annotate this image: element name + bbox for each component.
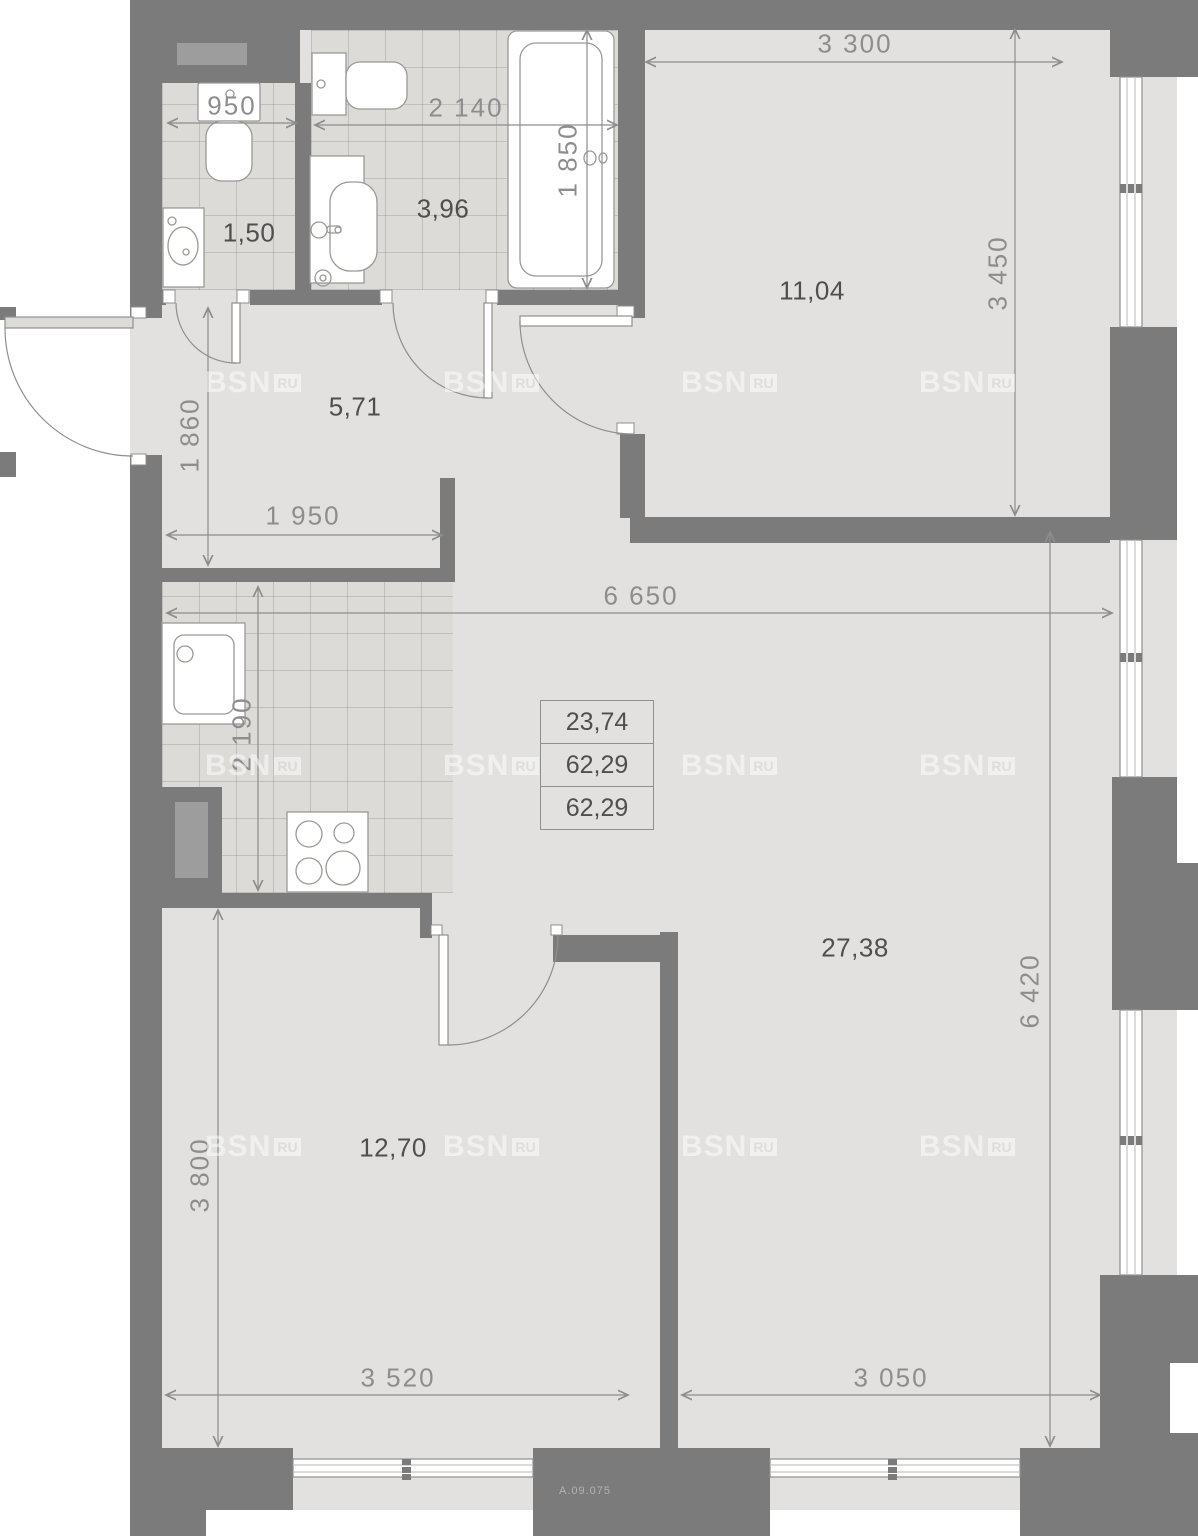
dim-bedroom-height: 3 450	[983, 235, 1014, 310]
summary-box: 23,74 62,29 62,29	[540, 700, 654, 830]
bathroom-sink	[310, 156, 377, 286]
dim-living-width: 6 650	[603, 581, 678, 612]
area-label-living: 27,38	[821, 933, 889, 964]
summary-room-area: 23,74	[541, 701, 653, 743]
watermark: BSN RU	[205, 368, 301, 398]
watermark: BSN RU	[681, 1132, 777, 1162]
dim-hall-height: 1 860	[175, 397, 206, 472]
window-living-upper	[1120, 540, 1142, 777]
watermark: BSN RU	[443, 751, 539, 781]
stove	[287, 812, 368, 892]
window-living-bottom	[770, 1459, 1020, 1480]
dim-living-bottom-width: 3 050	[853, 1363, 928, 1394]
plan-code: A.09.075	[559, 1485, 611, 1497]
window-room-bottom	[293, 1459, 533, 1480]
dim-bedroom-width: 3 300	[817, 29, 892, 60]
area-label-room: 12,70	[359, 1133, 427, 1164]
area-label-bathroom: 3,96	[417, 194, 470, 225]
summary-full-area: 62,29	[541, 786, 653, 829]
watermark: BSN RU	[919, 751, 1015, 781]
watermark: BSN RU	[919, 368, 1015, 398]
floorplan: 950 2 140 1 850 3 300 3 450 1 860 1 950 …	[0, 0, 1198, 1536]
watermark: BSN RU	[681, 751, 777, 781]
watermark: BSN RU	[443, 1132, 539, 1162]
watermark: BSN RU	[205, 1132, 301, 1162]
room-door	[439, 935, 558, 1045]
watermark: BSN RU	[205, 751, 301, 781]
summary-total-area: 62,29	[541, 743, 653, 786]
watermark-suffix: RU	[274, 374, 300, 392]
dim-hall-width: 1 950	[265, 501, 340, 532]
dim-bath-height: 1 850	[553, 122, 584, 197]
dim-bath-width: 2 140	[428, 93, 503, 124]
watermark: BSN RU	[681, 368, 777, 398]
wc-sink	[163, 208, 204, 287]
bathroom-vanity	[312, 53, 407, 115]
area-label-hall: 5,71	[329, 392, 382, 423]
watermark: BSN RU	[919, 1132, 1015, 1162]
window-bedroom	[1120, 77, 1142, 327]
dim-living-height: 6 420	[1015, 953, 1046, 1028]
watermark-brand: BSN	[205, 368, 271, 398]
dim-room-width: 3 520	[360, 1363, 435, 1394]
watermark: BSN RU	[443, 368, 539, 398]
entrance-door	[5, 317, 133, 456]
dim-wc-width: 950	[207, 91, 256, 122]
area-label-wc: 1,50	[223, 218, 276, 249]
window-living-lower	[1120, 1010, 1142, 1275]
area-label-bedroom: 11,04	[779, 276, 845, 307]
